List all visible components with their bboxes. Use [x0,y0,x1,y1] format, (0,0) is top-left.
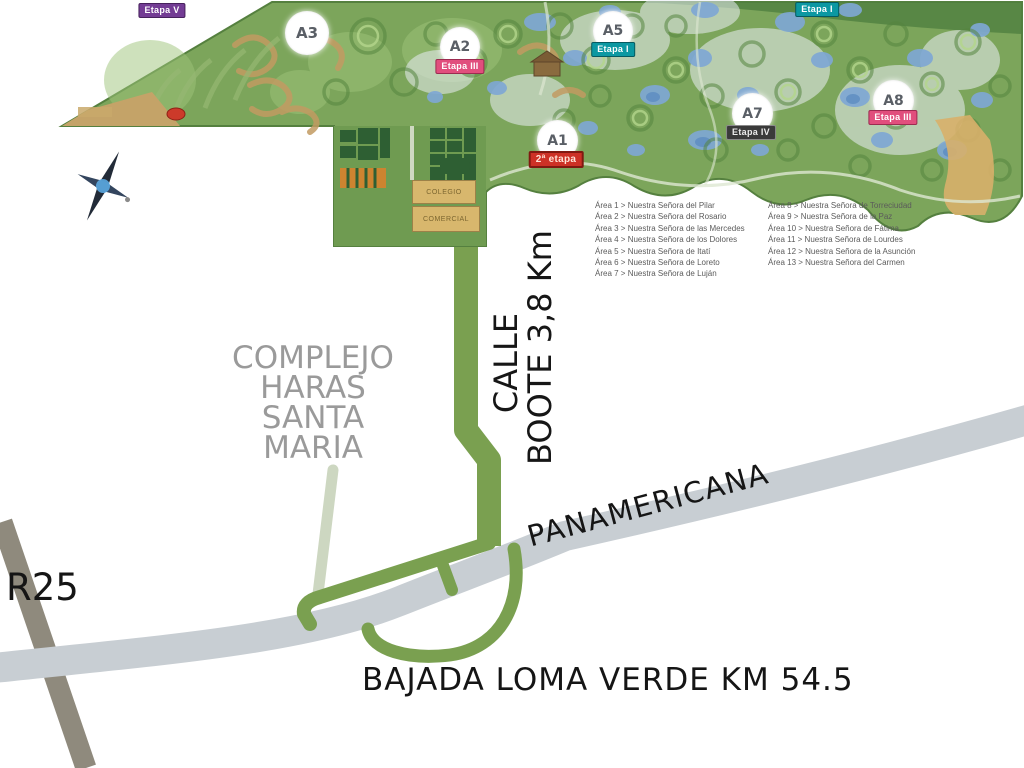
area-marker-a3: A3 [285,11,329,55]
legend-item: Área 5 > Nuestra Señora de Itatí [595,246,745,257]
legend-item: Área 9 > Nuestra Señora de la Paz [768,211,915,222]
calle-line-1: CALLE [489,261,523,465]
complejo-line-4: MARIA [213,433,413,463]
compass-icon [62,140,147,234]
small-tan-label [78,107,112,117]
calle-line-2: BOOTE 3,8 Km [523,261,557,465]
legend-item: Área 2 > Nuestra Señora del Rosario [595,211,745,222]
legend-item: Área 7 > Nuestra Señora de Luján [595,268,745,279]
legend-item: Área 11 > Nuestra Señora de Lourdes [768,234,915,245]
legend-item: Área 13 > Nuestra Señora del Carmen [768,257,915,268]
legend-item: Área 6 > Nuestra Señora de Loreto [595,257,745,268]
calle-boote-label: CALLE BOOTE 3,8 Km [489,261,557,465]
legend-item: Área 12 > Nuestra Señora de la Asunción [768,246,915,257]
secondary-road [318,470,333,594]
area-legend-column-1: Área 1 > Nuestra Señora del Pilar Área 2… [595,200,745,280]
zone-box-colegio: COLEGIO [412,180,476,204]
r25-label: R25 [6,566,79,609]
etapa-badge-a1: 2ª etapa [529,151,584,168]
etapa-badge-a2: Etapa III [435,59,484,74]
etapa-badge-a5: Etapa I [591,42,635,57]
legend-item: Área 10 > Nuestra Señora de Fátima [768,223,915,234]
etapa-i-badge: Etapa I [795,2,839,17]
bajada-loma-verde-label: BAJADA LOMA VERDE KM 54.5 [362,662,854,698]
etapa-badge-a8: Etapa III [868,110,917,125]
site-location-map: COMPLEJO HARAS SANTA MARIA CALLE BOOTE 3… [0,0,1024,768]
zone-box-comercial: COMERCIAL [412,206,480,232]
stable-icon [440,158,470,174]
legend-item: Área 8 > Nuestra Señora de Torreciudad [768,200,915,211]
complejo-line-2: HARAS [213,373,413,403]
area-legend-column-2: Área 8 > Nuestra Señora de Torreciudad Á… [768,200,915,268]
etapa-v-badge: Etapa V [138,3,185,18]
legend-item: Área 4 > Nuestra Señora de los Dolores [595,234,745,245]
complejo-line-3: SANTA [213,403,413,433]
legend-item: Área 3 > Nuestra Señora de las Mercedes [595,223,745,234]
complejo-title: COMPLEJO HARAS SANTA MARIA [213,343,413,463]
red-marker [167,108,185,120]
legend-item: Área 1 > Nuestra Señora del Pilar [595,200,745,211]
complejo-line-1: COMPLEJO [213,343,413,373]
etapa-badge-a7: Etapa IV [726,125,776,140]
